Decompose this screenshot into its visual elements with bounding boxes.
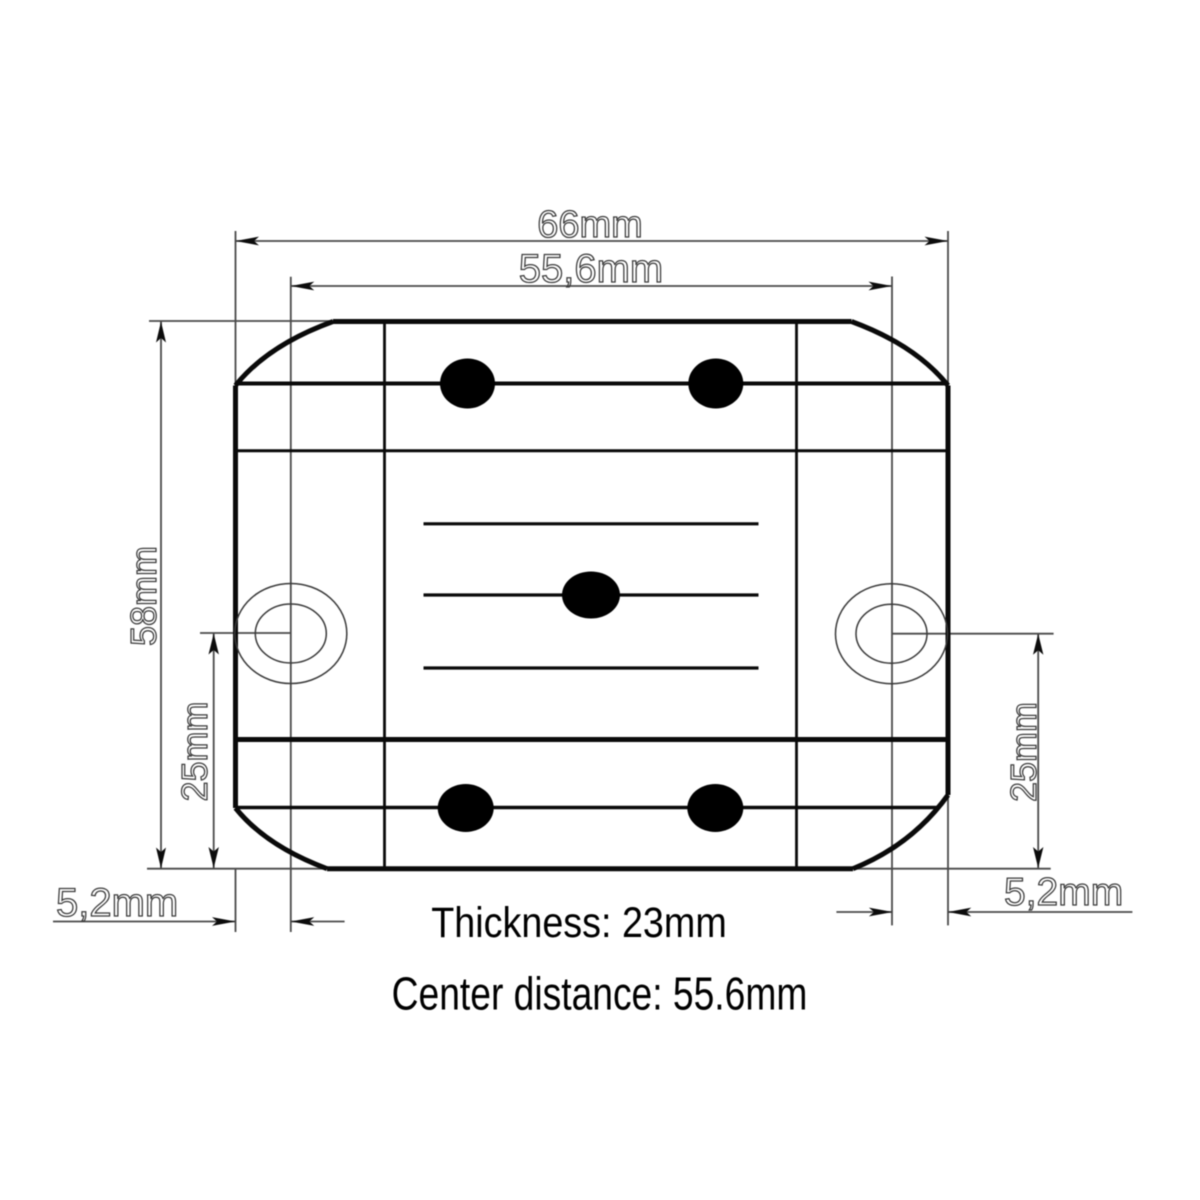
svg-text:5,2mm: 5,2mm	[1004, 871, 1123, 914]
svg-text:66mm: 66mm	[537, 204, 643, 246]
svg-text:58mm: 58mm	[123, 546, 164, 646]
svg-text:5,2mm: 5,2mm	[56, 881, 178, 925]
svg-text:55,6mm: 55,6mm	[519, 247, 664, 291]
svg-text:Thickness: 23mm: Thickness: 23mm	[431, 897, 726, 946]
svg-text:25mm: 25mm	[1003, 702, 1044, 802]
svg-text:25mm: 25mm	[174, 701, 215, 801]
svg-text:Center distance: 55.6mm: Center distance: 55.6mm	[392, 968, 808, 1020]
